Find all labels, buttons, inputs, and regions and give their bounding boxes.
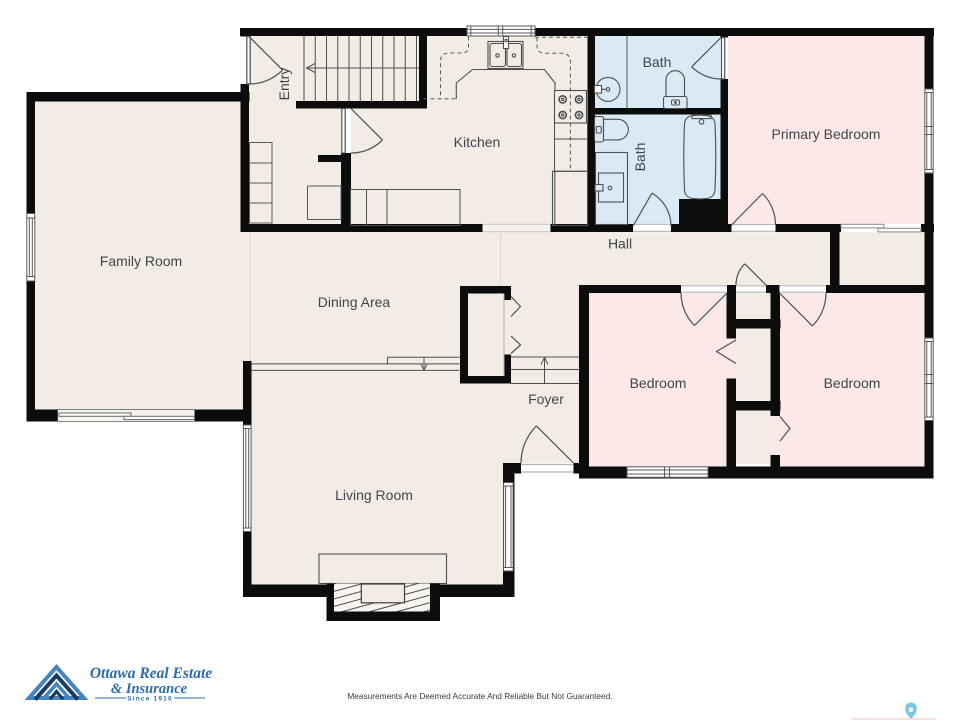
svg-text:Hall: Hall — [608, 236, 632, 252]
svg-text:Ottawa Real Estate: Ottawa Real Estate — [90, 665, 212, 682]
svg-text:Since 1910: Since 1910 — [127, 696, 173, 703]
svg-text:Entry: Entry — [276, 68, 292, 101]
svg-text:Bedroom: Bedroom — [630, 375, 687, 391]
svg-text:Family Room: Family Room — [100, 253, 182, 269]
svg-text:Bedroom: Bedroom — [824, 375, 881, 391]
svg-text:Bath: Bath — [643, 54, 672, 70]
svg-text:Bath: Bath — [632, 143, 648, 172]
svg-text:Primary Bedroom: Primary Bedroom — [772, 126, 881, 142]
svg-text:Living Room: Living Room — [335, 487, 413, 503]
svg-text:Kitchen: Kitchen — [454, 134, 501, 150]
svg-text:Measurements Are Deemed Accura: Measurements Are Deemed Accurate And Rel… — [347, 691, 612, 701]
svg-text:Foyer: Foyer — [528, 391, 564, 407]
svg-text:Dining Area: Dining Area — [318, 294, 391, 310]
